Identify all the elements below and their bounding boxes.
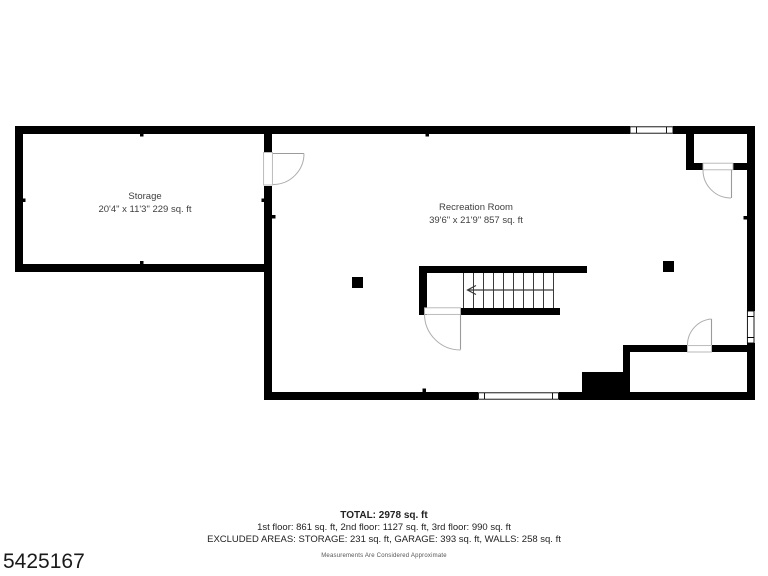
window-bottom <box>479 393 559 399</box>
door-closet <box>703 163 733 198</box>
step-block <box>582 372 627 397</box>
wall-brroom-top-b <box>712 345 755 352</box>
room-name: Storage <box>98 190 191 203</box>
support-post <box>352 277 363 288</box>
room-dimensions: 20'4" x 11'3" 229 sq. ft <box>98 203 191 216</box>
wall-storage-bottom <box>15 264 272 272</box>
dimension-ticks <box>22 133 747 392</box>
window-right <box>747 311 754 343</box>
wall-bottom-left <box>264 392 478 400</box>
door-under-stairs <box>425 308 461 350</box>
stairs <box>464 273 554 308</box>
wall-divider-lower <box>264 186 272 400</box>
doors <box>264 153 733 353</box>
summary-floors: 1st floor: 861 sq. ft, 2nd floor: 1127 s… <box>0 522 768 534</box>
storage-room-label: Storage 20'4" x 11'3" 229 sq. ft <box>98 190 191 216</box>
wall-divider-upper <box>264 126 272 152</box>
summary-excluded: EXCLUDED AREAS: STORAGE: 231 sq. ft, GAR… <box>0 534 768 546</box>
door-bottom-right-room <box>687 319 711 352</box>
summary-disclaimer: Measurements Are Considered Approximate <box>0 552 768 560</box>
floor-plan-drawing <box>0 0 768 576</box>
stair-direction-arrow <box>468 286 554 295</box>
door-storage <box>264 153 304 186</box>
wall-top-left <box>15 126 630 134</box>
wall-closet-bottom-a <box>686 163 703 170</box>
wall-storage-left <box>15 126 23 272</box>
mls-number: 5425167 <box>3 550 85 574</box>
room-dimensions: 39'6" x 21'9" 857 sq. ft <box>429 214 523 227</box>
wall-top-right <box>673 126 755 134</box>
walls <box>15 126 755 400</box>
wall-stairs-bottom <box>460 308 560 315</box>
wall-closet-bottom-b <box>733 163 747 170</box>
wall-brroom-top-a <box>623 345 687 352</box>
wall-stairs-top <box>419 266 587 273</box>
summary-total: TOTAL: 2978 sq. ft <box>0 510 768 522</box>
wall-right-upper <box>747 126 755 311</box>
area-summary: TOTAL: 2978 sq. ft 1st floor: 861 sq. ft… <box>0 510 768 560</box>
recreation-room-label: Recreation Room 39'6" x 21'9" 857 sq. ft <box>429 201 523 227</box>
room-name: Recreation Room <box>429 201 523 214</box>
window-top <box>630 127 673 133</box>
support-post <box>663 261 674 272</box>
